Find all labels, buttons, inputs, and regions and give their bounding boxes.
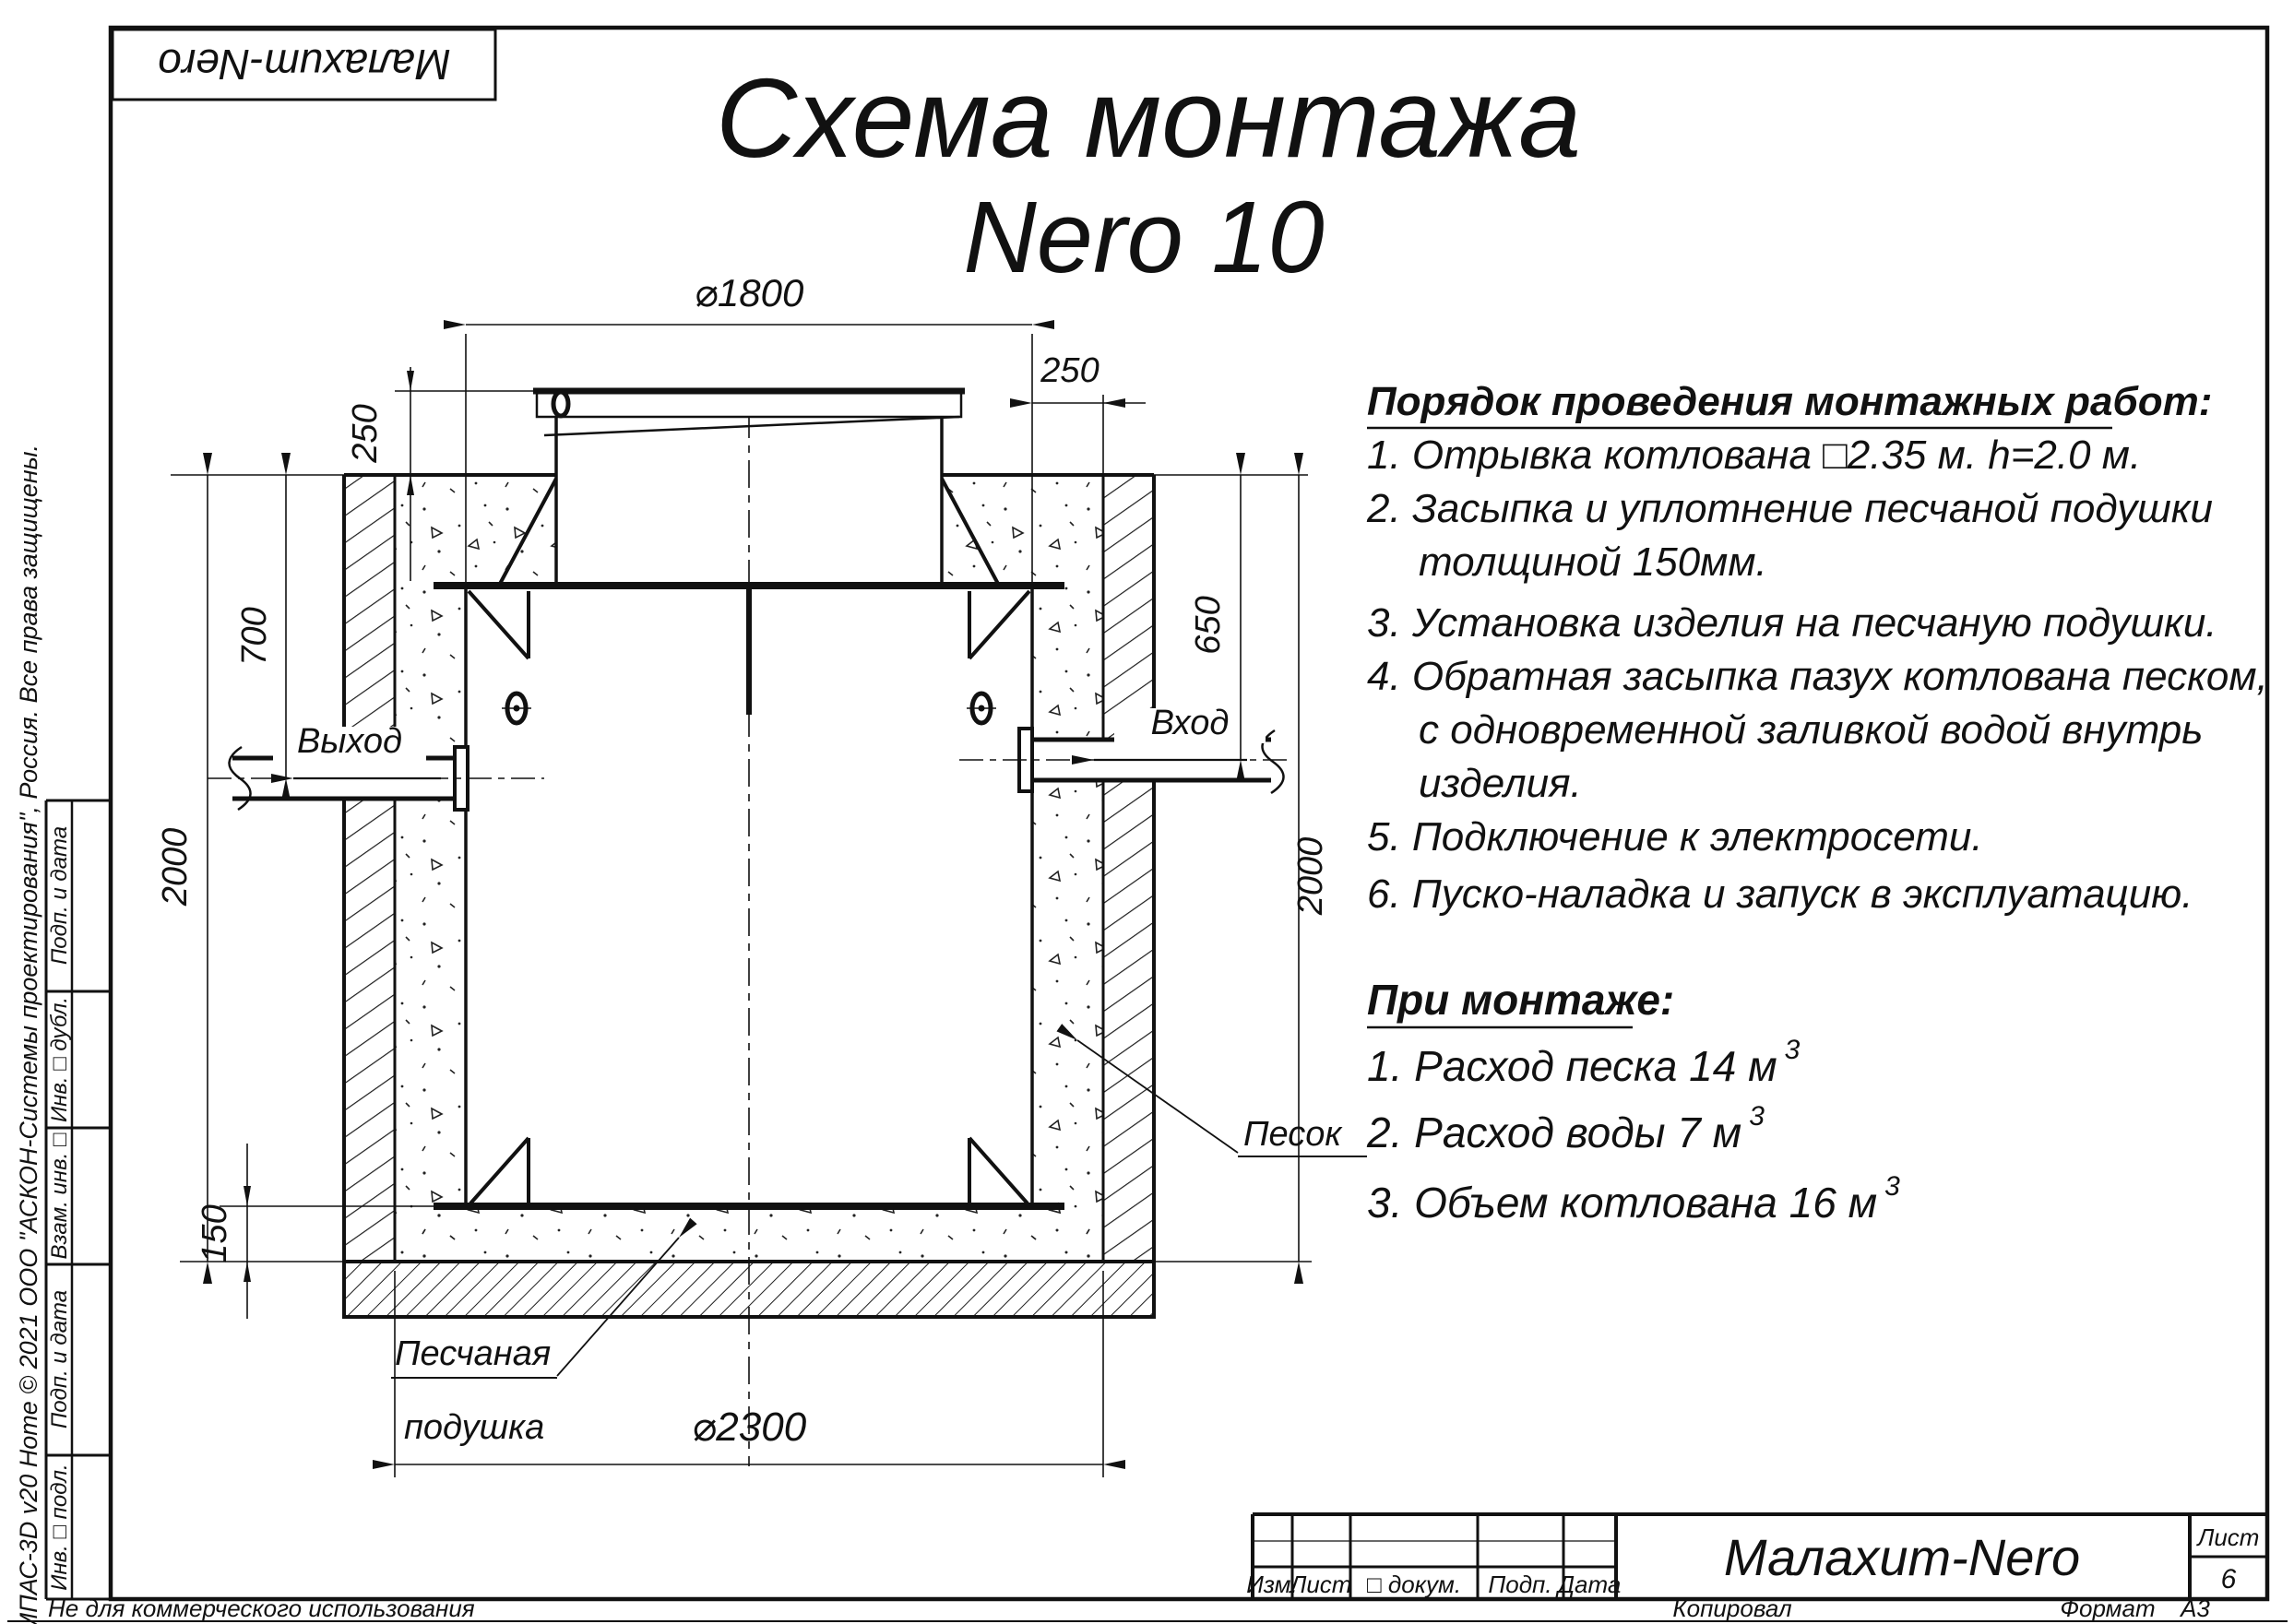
titleblock-col-doc: □ докум. — [1367, 1571, 1461, 1598]
not-for-commercial-note: Не для коммерческого использования — [48, 1594, 475, 1622]
sidebar-cell-label: Подп. и дата — [47, 826, 72, 965]
inlet-pipe: Вход — [959, 704, 1291, 793]
montage-item-text: 1. Расход песка 14 м — [1367, 1042, 1777, 1090]
instruction-item: 6. Пуско-наладка и запуск в эксплуатацию… — [1367, 871, 2193, 917]
page-subtitle: Nero 10 — [963, 181, 1324, 294]
montage-item: 2. Расход воды 7 м3 — [1366, 1101, 1765, 1156]
montage-item-text: 2. Расход воды 7 м — [1366, 1108, 1741, 1156]
sheet-number: 6 — [2221, 1564, 2237, 1594]
title-block: Изм. Лист □ докум. Подп. Дата Малахит-Ne… — [1246, 1514, 2267, 1599]
dim-cushion-thickness: 150 — [196, 1204, 234, 1262]
montage-item-text: 3. Объем котлована 16 м — [1367, 1179, 1877, 1227]
sidebar-cell-label: Инв. □ подл. — [47, 1464, 72, 1590]
cushion-label-line1: Песчаная — [395, 1334, 551, 1373]
tank-lid — [537, 391, 961, 417]
instruction-item: 1. Отрывка котлована □2.35 м. h=2.0 м. — [1367, 433, 2141, 478]
format-label: Формат — [2060, 1594, 2155, 1622]
instruction-item: 4. Обратная засыпка пазух котлована песк… — [1367, 654, 2268, 699]
installation-instructions: Порядок проведения монтажных работ: 1. О… — [1366, 379, 2268, 917]
dim-outlet-depth: 700 — [235, 607, 274, 665]
dim-top-diameter: ⌀1800 — [695, 271, 804, 314]
dim-inlet-depth: 650 — [1189, 596, 1228, 654]
inlet-label: Вход — [1151, 704, 1230, 742]
instructions-header: Порядок проведения монтажных работ: — [1367, 379, 2212, 424]
cushion-label-line2: подушка — [404, 1408, 544, 1447]
sand-label: Песок — [1243, 1115, 1343, 1154]
dim-lid-height: 250 — [346, 404, 385, 463]
montage-item-sup: 3 — [1785, 1035, 1801, 1065]
sheet-title: Схема монтажа Nero 10 — [716, 55, 1581, 294]
drawing-sheet: Малахит-Nero Подп. и дата Инв. □ дубл. В… — [0, 0, 2294, 1624]
dim-depth-left: 2000 — [156, 828, 195, 907]
outlet-pipe: Выход — [208, 722, 544, 810]
montage-item: 1. Расход песка 14 м3 — [1367, 1035, 1801, 1090]
titleblock-col-list: Лист — [1289, 1571, 1352, 1598]
format-value: А3 — [2179, 1594, 2210, 1622]
installation-section-view: Выход Вход ⌀1800 250 — [156, 271, 1367, 1477]
sidebar-cell-label: Инв. □ дубл. — [47, 997, 72, 1122]
montage-item-sup: 3 — [1884, 1171, 1900, 1202]
outlet-label: Выход — [297, 722, 402, 761]
instruction-item: 5. Подключение к электросети. — [1367, 814, 1983, 859]
instruction-item: изделия. — [1419, 761, 1582, 806]
dim-pit-diameter: ⌀2300 — [692, 1405, 807, 1450]
lifting-lug — [967, 693, 996, 723]
left-sidebar: Подп. и дата Инв. □ дубл. Взам. инв. □ П… — [15, 445, 111, 1624]
product-name: Малахит-Nero — [1724, 1528, 2080, 1586]
montage-item: 3. Объем котлована 16 м3 — [1367, 1171, 1900, 1227]
sidebar-cell-label: Подп. и дата — [47, 1290, 72, 1428]
copied-label: Копировал — [1672, 1594, 1792, 1622]
sidebar-cell-label: Взам. инв. □ — [47, 1132, 72, 1259]
instruction-item: 2. Засыпка и уплотнение песчаной подушки — [1366, 486, 2213, 531]
montage-item-sup: 3 — [1749, 1101, 1765, 1132]
titleblock-col-date: Дата — [1555, 1571, 1622, 1598]
lifting-lug — [502, 693, 531, 723]
montage-header: При монтаже: — [1367, 976, 1674, 1024]
instruction-item: 3. Установка изделия на песчаную подушки… — [1367, 600, 2217, 646]
instruction-item: толщиной 150мм. — [1419, 539, 1767, 585]
instruction-item: с одновременной заливкой водой внутрь — [1419, 707, 2203, 753]
software-copyright: КОМПАС-3D v20 Home © 2021 ООО "АСКОН-Сис… — [15, 445, 42, 1624]
dim-depth-right: 2000 — [1291, 837, 1330, 917]
sheet-label: Лист — [2196, 1523, 2260, 1551]
montage-notes: При монтаже: 1. Расход песка 14 м3 2. Ра… — [1366, 976, 1900, 1227]
cad-canvas: Малахит-Nero Подп. и дата Инв. □ дубл. В… — [0, 0, 2294, 1624]
page-title: Схема монтажа — [716, 55, 1581, 181]
logo-rotated: Малахит-Nero — [158, 41, 450, 89]
titleblock-col-sign: Подп. — [1488, 1571, 1551, 1598]
dim-side-gap: 250 — [1040, 351, 1099, 390]
